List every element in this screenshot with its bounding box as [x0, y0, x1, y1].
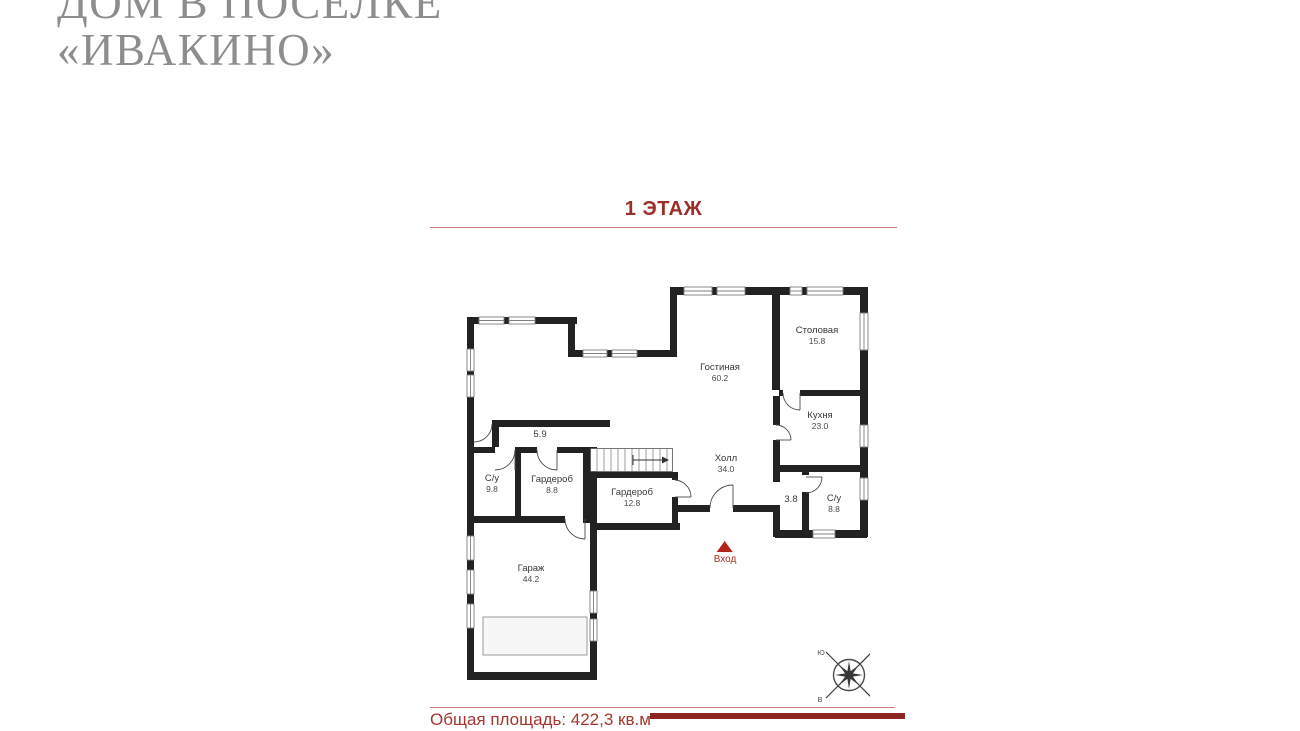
page-title-line2: «ИВАКИНО» — [57, 25, 335, 75]
compass-rose: Ю З В С — [817, 648, 870, 704]
room-area: 8.8 — [531, 486, 573, 496]
compass-letter-nw: Ю — [817, 648, 825, 657]
room-area: 5.9 — [533, 430, 546, 441]
page-title-line1: ДОМ В ПОСЕЛКЕ — [57, 0, 443, 28]
floor-plan-drawing: Ю З В С — [465, 283, 870, 715]
top-divider-line — [430, 227, 897, 228]
total-area-label: Общая площадь: 422,3 кв.м — [430, 710, 651, 730]
room-area: 15.8 — [796, 337, 838, 347]
entrance-label: Вход — [714, 554, 737, 565]
bottom-divider-line — [430, 707, 895, 708]
room-area: 8.8 — [827, 505, 841, 515]
staircase — [591, 449, 673, 472]
room-area: 60.2 — [700, 374, 740, 384]
room-label-corridor-5-9: 5.9 — [533, 430, 546, 441]
room-label-garderob-1: Гардероб 8.8 — [531, 475, 573, 495]
room-label-corridor-3-8: 3.8 — [784, 495, 797, 506]
floor-title: 1 ЭТАЖ — [430, 198, 897, 221]
bottom-red-bar — [650, 713, 905, 719]
room-label-kuhnya: Кухня 23.0 — [807, 411, 832, 431]
room-area: 34.0 — [715, 465, 737, 475]
entrance-marker: Вход — [714, 541, 737, 565]
room-label-su-right: С/у 8.8 — [827, 494, 841, 514]
room-label-garazh: Гараж 44.2 — [518, 564, 545, 584]
garage-door — [483, 617, 587, 655]
room-area: 23.0 — [807, 422, 832, 432]
page: ДОМ В ПОСЕЛКЕ«ИВАКИНО» 1 ЭТАЖ — [0, 0, 1300, 731]
room-label-su-left: С/у 9.8 — [485, 474, 499, 494]
compass-letter-sw: В — [817, 695, 822, 704]
room-label-garderob-2: Гардероб 12.8 — [611, 488, 653, 508]
room-area: 12.8 — [611, 499, 653, 509]
floor-plan: Ю З В С Гостиная 60.2 Столовая 15.8 Кухн… — [465, 283, 870, 715]
compass-star-icon — [835, 661, 863, 689]
room-label-stolovaya: Столовая 15.8 — [796, 326, 838, 346]
page-title: ДОМ В ПОСЕЛКЕ«ИВАКИНО» — [57, 0, 443, 74]
entrance-triangle-icon — [717, 541, 733, 552]
room-area: 3.8 — [784, 495, 797, 506]
room-label-holl: Холл 34.0 — [715, 454, 737, 474]
room-area: 9.8 — [485, 485, 499, 495]
room-area: 44.2 — [518, 575, 545, 585]
room-label-gostinaya: Гостиная 60.2 — [700, 363, 740, 383]
